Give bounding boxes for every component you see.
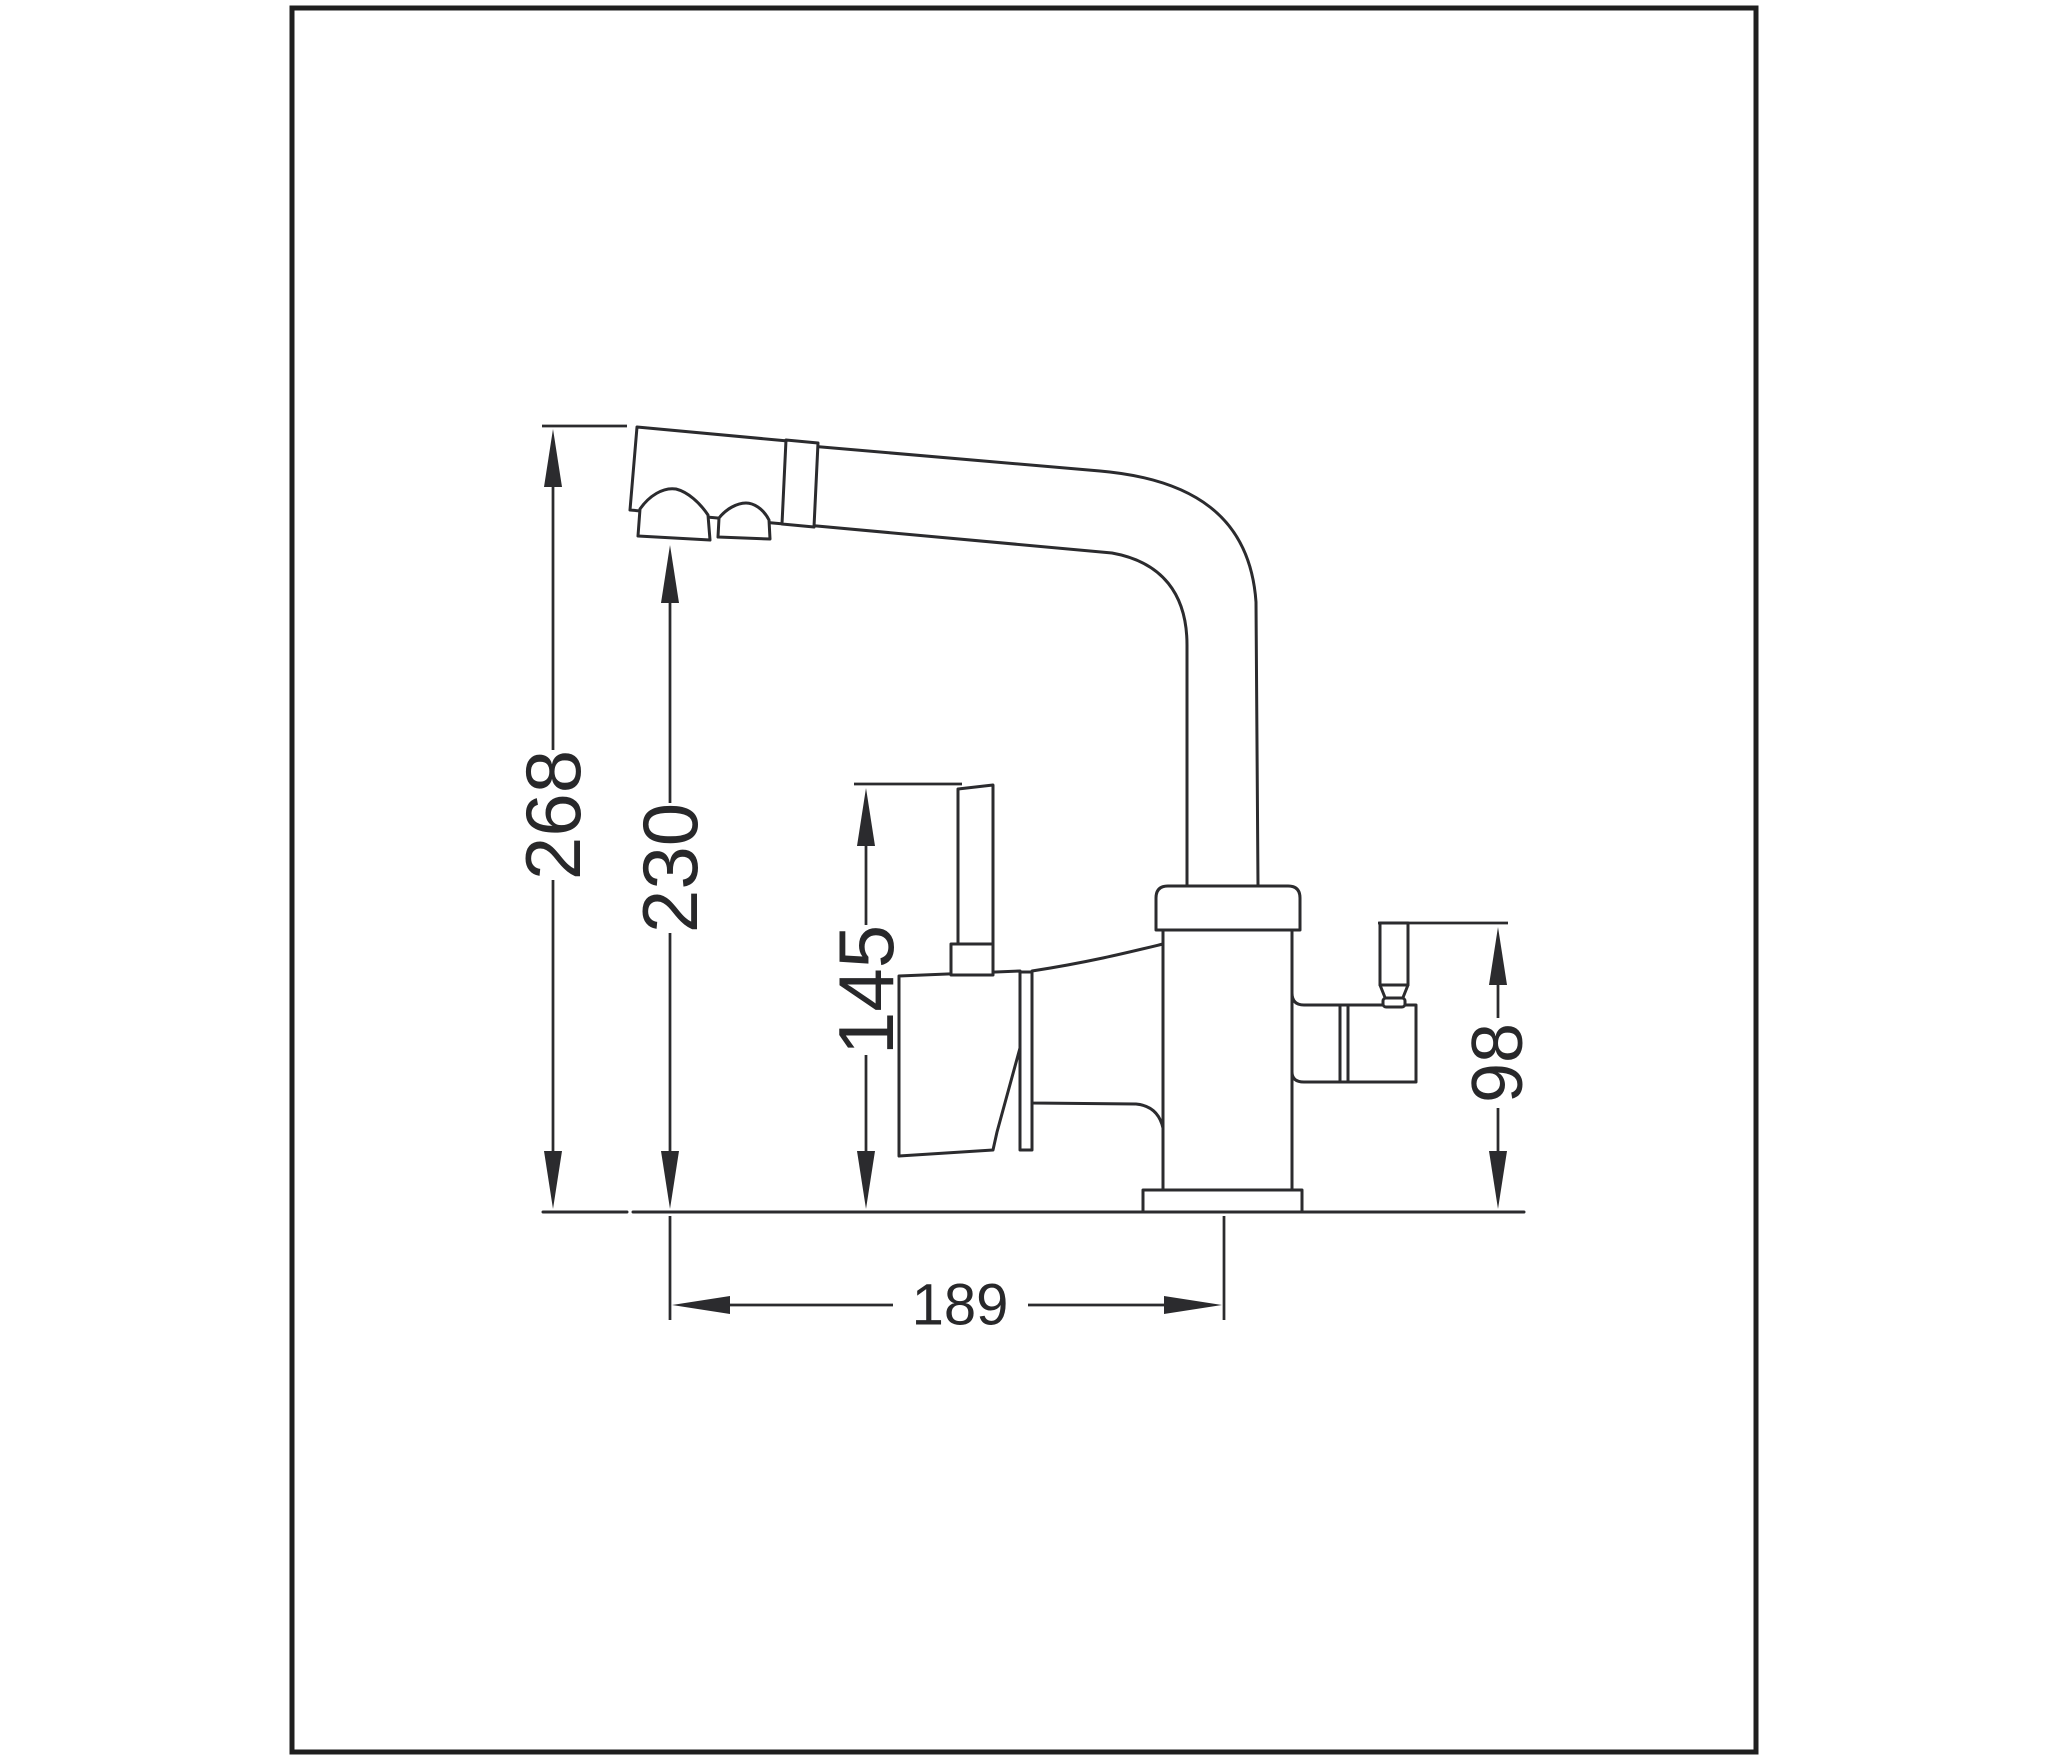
dim-268-arrow-down xyxy=(544,1151,562,1209)
left-handle-lever-base xyxy=(951,944,993,975)
faucet-technical-drawing: 268 230 145 98 189 xyxy=(0,0,2048,1757)
dim-189-label: 189 xyxy=(912,1273,1009,1338)
dim-268-label: 268 xyxy=(509,750,597,880)
left-handle-joint xyxy=(1020,972,1032,1150)
base-flange xyxy=(1143,1190,1302,1212)
dim-145-arrow-up xyxy=(857,788,875,846)
dim-230-label: 230 xyxy=(626,803,714,933)
drawing-sheet: 268 230 145 98 189 xyxy=(0,0,2048,1757)
dim-268-arrow-up xyxy=(544,429,562,487)
dim-98-label: 98 xyxy=(1458,1023,1538,1103)
spout-ring xyxy=(782,440,818,527)
dim-230-arrow-down xyxy=(661,1151,679,1209)
right-lever-foot xyxy=(1383,998,1405,1007)
left-valve-neck xyxy=(1032,944,1163,1128)
right-valve-block xyxy=(1340,1005,1416,1082)
dim-98-arrow-up xyxy=(1489,927,1507,985)
dim-98-arrow-down xyxy=(1489,1151,1507,1209)
dimension-spout-outlet-height: 230 xyxy=(626,545,714,1209)
dim-230-arrow-up xyxy=(661,545,679,603)
body-column xyxy=(1163,930,1292,1190)
dimension-overall-height: 268 xyxy=(509,426,627,1209)
dim-145-label: 145 xyxy=(822,925,910,1055)
left-handle-lever xyxy=(958,785,993,944)
spout-tube xyxy=(806,446,1258,886)
dim-189-arrow-left xyxy=(672,1296,730,1314)
right-lever-stick xyxy=(1380,923,1408,985)
right-valve-connector xyxy=(1292,993,1340,1082)
dim-145-arrow-down xyxy=(857,1151,875,1209)
dimension-spout-reach: 189 xyxy=(670,1216,1224,1338)
dim-189-arrow-right xyxy=(1164,1296,1222,1314)
body-collar xyxy=(1156,886,1300,930)
left-handle-body xyxy=(899,971,1020,1156)
